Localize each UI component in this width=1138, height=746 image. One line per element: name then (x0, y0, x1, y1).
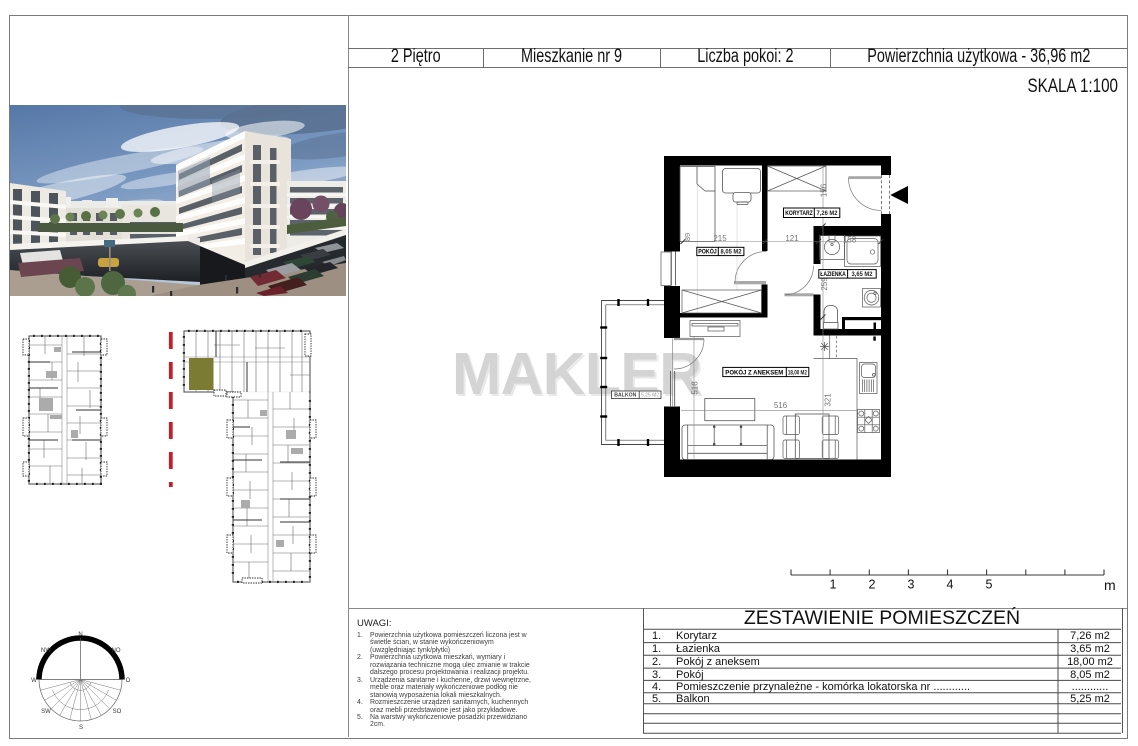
svg-text:321: 321 (824, 393, 833, 407)
svg-text:3,65 M2: 3,65 M2 (852, 271, 873, 278)
svg-text:259: 259 (820, 277, 829, 291)
svg-text:ŁAZIENKA: ŁAZIENKA (820, 271, 846, 278)
svg-text:89: 89 (683, 233, 692, 241)
svg-text:N: N (78, 632, 82, 638)
svg-text:156: 156 (820, 183, 829, 197)
svg-text:KORYTARZ: KORYTARZ (785, 210, 813, 217)
svg-text:BALKON: BALKON (614, 393, 636, 399)
svg-text:W: W (31, 678, 37, 684)
svg-text:8,05 M2: 8,05 M2 (721, 249, 742, 256)
svg-text:121: 121 (785, 234, 799, 243)
svg-text:POKÓJ: POKÓJ (698, 247, 717, 256)
svg-text:S: S (79, 725, 83, 731)
svg-text:SW: SW (41, 709, 51, 715)
svg-text:5: 5 (986, 578, 993, 592)
svg-text:18,00 M2: 18,00 M2 (788, 369, 807, 376)
svg-text:POKÓJ Z ANEKSEM: POKÓJ Z ANEKSEM (725, 367, 783, 376)
svg-text:158: 158 (843, 236, 857, 245)
svg-text:1: 1 (830, 578, 837, 592)
svg-text:2: 2 (869, 578, 876, 592)
svg-text:O: O (126, 678, 131, 684)
svg-text:4: 4 (947, 578, 954, 592)
svg-text:NO: NO (112, 648, 121, 654)
svg-text:7,26 M2: 7,26 M2 (817, 210, 838, 217)
svg-text:516: 516 (774, 401, 788, 410)
svg-text:SO: SO (113, 709, 122, 715)
svg-text:518: 518 (691, 381, 700, 395)
svg-text:NW: NW (41, 648, 51, 654)
svg-text:3: 3 (908, 578, 915, 592)
svg-text:m: m (1104, 577, 1116, 593)
svg-text:215: 215 (713, 234, 727, 243)
svg-text:5,25 M2: 5,25 M2 (641, 393, 659, 399)
